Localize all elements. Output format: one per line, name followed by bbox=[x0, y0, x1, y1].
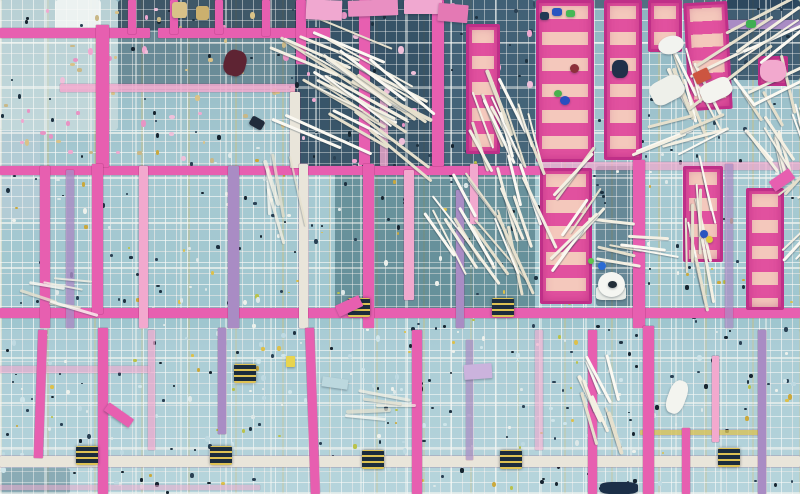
clamp-block bbox=[362, 450, 384, 469]
pink-tarp bbox=[760, 60, 786, 82]
debris-speck bbox=[166, 491, 169, 494]
formwork-beam-vertical bbox=[432, 0, 444, 166]
debris-speck bbox=[460, 468, 464, 473]
formwork-beam-vertical bbox=[228, 166, 239, 328]
debris-speck bbox=[203, 141, 205, 143]
debris-speck bbox=[81, 155, 83, 158]
debris-speck bbox=[156, 133, 159, 138]
debris-speck bbox=[295, 82, 299, 88]
worker bbox=[566, 10, 575, 17]
debris-speck bbox=[395, 374, 399, 380]
debris-speck bbox=[433, 485, 436, 487]
debris-speck bbox=[736, 260, 739, 262]
debris-speck bbox=[402, 123, 405, 127]
debris-speck bbox=[243, 114, 248, 118]
debris-speck bbox=[693, 276, 695, 278]
debris-speck bbox=[156, 285, 160, 287]
debris-speck bbox=[518, 75, 520, 77]
formwork-beam-horizontal bbox=[0, 308, 800, 318]
formwork-beam-vertical bbox=[404, 170, 414, 300]
debris-speck bbox=[506, 436, 509, 438]
debris-speck bbox=[791, 197, 794, 199]
debris-speck bbox=[26, 17, 29, 20]
debris-speck bbox=[450, 181, 453, 183]
debris-speck bbox=[76, 111, 79, 115]
formwork-beam-vertical bbox=[299, 164, 308, 328]
debris-speck bbox=[416, 144, 419, 147]
formwork-beam-vertical bbox=[218, 328, 226, 434]
debris-speck bbox=[338, 208, 340, 211]
debris-speck bbox=[277, 54, 280, 56]
debris-speck bbox=[261, 347, 264, 351]
debris-speck bbox=[695, 320, 697, 323]
debris-speck bbox=[70, 63, 75, 66]
debris-speck bbox=[68, 150, 73, 154]
worker bbox=[598, 262, 606, 270]
debris-speck bbox=[50, 385, 53, 389]
debris-speck bbox=[384, 260, 388, 266]
debris-speck bbox=[520, 388, 523, 391]
debris-speck bbox=[435, 327, 437, 330]
debris-speck bbox=[255, 159, 258, 162]
formwork-panel bbox=[536, 0, 594, 162]
debris-speck bbox=[411, 71, 416, 75]
debris-speck bbox=[527, 81, 533, 88]
debris-speck bbox=[790, 301, 793, 303]
formwork-beam-vertical bbox=[712, 356, 719, 442]
debris-speck bbox=[25, 139, 30, 146]
debris-speck bbox=[464, 183, 468, 188]
debris-speck bbox=[344, 182, 347, 186]
worker bbox=[540, 12, 549, 20]
debris-speck bbox=[391, 387, 394, 391]
debris-speck bbox=[398, 46, 404, 54]
debris-speck bbox=[188, 396, 192, 401]
debris-speck bbox=[250, 12, 255, 19]
debris-speck bbox=[532, 324, 535, 329]
debris-speck bbox=[476, 293, 479, 295]
wood-crate bbox=[196, 6, 209, 20]
debris-speck bbox=[170, 448, 173, 450]
formwork-panel bbox=[604, 0, 642, 160]
debris-speck bbox=[635, 334, 637, 337]
debris-speck bbox=[51, 118, 54, 122]
debris-speck bbox=[190, 473, 194, 478]
debris-speck bbox=[314, 239, 318, 244]
debris-speck bbox=[570, 351, 573, 353]
debris-speck bbox=[201, 192, 204, 194]
debris-speck bbox=[350, 373, 352, 374]
worker bbox=[554, 90, 562, 97]
white-pole bbox=[691, 204, 694, 263]
debris-speck bbox=[253, 202, 256, 204]
debris-speck bbox=[300, 342, 302, 344]
debris-speck bbox=[128, 247, 130, 248]
navy-tarp bbox=[600, 482, 638, 494]
debris-speck bbox=[319, 442, 322, 444]
debris-speck bbox=[210, 158, 214, 163]
debris-speck bbox=[773, 103, 776, 105]
debris-speck bbox=[383, 15, 386, 19]
debris-speck bbox=[162, 399, 164, 401]
debris-speck bbox=[655, 405, 659, 410]
debris-speck bbox=[435, 281, 438, 286]
debris-speck bbox=[133, 359, 137, 361]
formwork-beam-horizontal bbox=[0, 366, 150, 373]
debris-speck bbox=[330, 347, 332, 350]
formwork-beam-horizontal bbox=[0, 456, 800, 467]
debris-speck bbox=[18, 94, 21, 99]
debris-speck bbox=[155, 120, 157, 122]
debris-speck bbox=[11, 79, 13, 82]
formwork-beam-horizontal bbox=[0, 485, 260, 490]
debris-speck bbox=[281, 404, 284, 406]
worker bbox=[570, 64, 579, 73]
formwork-beam-vertical bbox=[633, 160, 645, 328]
debris-speck bbox=[742, 285, 745, 290]
debris-speck bbox=[688, 266, 691, 269]
debris-speck bbox=[211, 271, 214, 275]
debris-speck bbox=[16, 425, 18, 427]
debris-speck bbox=[640, 360, 642, 362]
formwork-beam-vertical bbox=[215, 0, 223, 34]
debris-speck bbox=[123, 299, 126, 303]
debris-speck bbox=[417, 323, 420, 325]
debris-speck bbox=[742, 279, 744, 281]
pink-panel-piece bbox=[306, 0, 343, 21]
yellow-note bbox=[286, 356, 295, 367]
debris-speck bbox=[686, 273, 689, 276]
debris-speck bbox=[785, 352, 788, 354]
debris-speck bbox=[84, 225, 87, 228]
debris-speck bbox=[284, 221, 286, 223]
debris-speck bbox=[288, 292, 291, 294]
debris-speck bbox=[563, 422, 567, 425]
debris-speck bbox=[6, 349, 9, 352]
debris-speck bbox=[516, 353, 519, 358]
debris-speck bbox=[397, 232, 399, 235]
debris-speck bbox=[159, 290, 161, 293]
green-bit bbox=[746, 20, 756, 28]
debris bbox=[248, 115, 265, 131]
debris-speck bbox=[196, 258, 200, 263]
clamp-block bbox=[76, 446, 98, 465]
debris-speck bbox=[774, 483, 777, 487]
debris-speck bbox=[704, 384, 708, 389]
clamp-block bbox=[492, 298, 514, 317]
debris-speck bbox=[169, 132, 174, 136]
debris-speck bbox=[519, 446, 521, 449]
debris-speck bbox=[249, 427, 253, 431]
debris-speck bbox=[354, 238, 357, 241]
debris-speck bbox=[302, 136, 306, 140]
debris-speck bbox=[20, 397, 25, 402]
debris-speck bbox=[509, 44, 511, 46]
debris-speck bbox=[87, 434, 91, 439]
formwork-beam-vertical bbox=[643, 326, 654, 494]
formwork-beam-vertical bbox=[139, 166, 148, 328]
debris-speck bbox=[739, 341, 743, 345]
debris-speck bbox=[21, 388, 24, 390]
debris-speck bbox=[400, 388, 403, 391]
debris-speck bbox=[648, 114, 651, 117]
debris-speck bbox=[649, 268, 652, 270]
pink-panel-piece bbox=[348, 0, 399, 17]
clamp-block bbox=[718, 448, 740, 467]
debris-speck bbox=[677, 271, 679, 274]
debris-speck bbox=[670, 149, 673, 152]
debris-speck bbox=[89, 151, 93, 154]
debris-speck bbox=[304, 398, 307, 403]
debris-speck bbox=[711, 268, 714, 270]
debris-speck bbox=[381, 196, 384, 200]
debris-speck bbox=[645, 155, 647, 158]
debris-speck bbox=[66, 121, 70, 126]
debris-speck bbox=[685, 285, 689, 289]
debris-speck bbox=[315, 132, 318, 134]
debris-speck bbox=[783, 379, 787, 382]
debris-speck bbox=[20, 302, 23, 304]
debris-speck bbox=[449, 410, 452, 412]
clamp-block bbox=[210, 446, 232, 465]
debris-speck bbox=[20, 141, 24, 144]
debris-speck bbox=[216, 245, 220, 249]
debris-speck bbox=[51, 396, 54, 398]
debris-speck bbox=[256, 147, 260, 149]
debris-speck bbox=[457, 331, 460, 333]
debris-speck bbox=[600, 191, 604, 194]
white-pole bbox=[376, 404, 416, 407]
formwork-beam-vertical bbox=[725, 164, 733, 328]
debris-speck bbox=[40, 131, 46, 135]
debris-speck bbox=[49, 134, 53, 139]
debris-speck bbox=[188, 247, 191, 251]
debris-speck bbox=[558, 335, 561, 339]
debris-speck bbox=[717, 281, 721, 284]
debris-speck bbox=[647, 242, 650, 245]
debris-speck bbox=[6, 188, 10, 194]
debris-speck bbox=[549, 407, 553, 410]
debris-speck bbox=[281, 333, 286, 338]
debris-speck bbox=[60, 423, 62, 426]
debris-speck bbox=[404, 331, 407, 333]
debris-speck bbox=[791, 382, 795, 385]
debris-speck bbox=[472, 319, 474, 321]
debris-speck bbox=[780, 8, 783, 11]
debris-speck bbox=[195, 95, 200, 100]
debris-speck bbox=[452, 350, 455, 352]
debris-speck bbox=[56, 179, 60, 182]
debris-speck bbox=[256, 358, 261, 365]
clamp-block bbox=[500, 450, 522, 469]
debris-speck bbox=[110, 254, 113, 257]
debris-speck bbox=[228, 153, 232, 158]
debris-speck bbox=[291, 77, 293, 79]
formwork-beam-vertical bbox=[128, 0, 136, 34]
debris-speck bbox=[527, 30, 532, 37]
debris-speck bbox=[250, 57, 253, 60]
debris-speck bbox=[480, 346, 484, 349]
debris-speck bbox=[205, 288, 208, 291]
formwork-beam-vertical bbox=[148, 330, 155, 450]
debris-speck bbox=[649, 171, 651, 173]
debris-speck bbox=[321, 232, 323, 233]
debris-speck bbox=[76, 296, 79, 300]
construction-site-aerial-photo: Aerial top-down photograph of a building… bbox=[0, 0, 800, 494]
debris-speck bbox=[154, 8, 158, 11]
debris-speck bbox=[788, 394, 792, 399]
debris-speck bbox=[141, 120, 146, 127]
debris-speck bbox=[260, 235, 262, 238]
debris-speck bbox=[137, 151, 141, 155]
white-pole bbox=[797, 168, 800, 198]
debris-speck bbox=[243, 300, 247, 306]
debris-speck bbox=[169, 115, 175, 119]
debris-speck bbox=[555, 482, 558, 486]
debris-speck bbox=[598, 119, 601, 122]
debris-speck bbox=[256, 297, 260, 303]
debris-speck bbox=[333, 156, 336, 160]
debris-speck bbox=[145, 50, 148, 53]
debris-speck bbox=[140, 478, 143, 481]
debris-speck bbox=[83, 208, 87, 214]
debris-speck bbox=[49, 98, 51, 99]
debris-speck bbox=[596, 325, 600, 328]
debris-speck bbox=[15, 207, 18, 210]
debris-speck bbox=[232, 388, 235, 391]
mixer-hub bbox=[608, 281, 617, 288]
debris-speck bbox=[252, 324, 256, 327]
debris-speck bbox=[155, 258, 158, 262]
debris-speck bbox=[4, 104, 8, 107]
debris-speck bbox=[192, 19, 194, 21]
debris-speck bbox=[149, 474, 151, 477]
debris-speck bbox=[665, 180, 668, 184]
pink-panel-piece bbox=[404, 0, 442, 14]
debris-speck bbox=[566, 407, 569, 409]
white-pole bbox=[741, 90, 763, 122]
debris-speck bbox=[311, 224, 314, 228]
debris-speck bbox=[521, 442, 525, 446]
purple-sign bbox=[464, 363, 493, 380]
debris-speck bbox=[604, 202, 606, 204]
debris-speck bbox=[377, 434, 380, 438]
debris-speck bbox=[353, 444, 356, 449]
debris-speck bbox=[658, 481, 661, 485]
debris-speck bbox=[80, 24, 83, 28]
formwork-beam-vertical bbox=[682, 428, 690, 494]
debris-speck bbox=[554, 437, 556, 440]
debris-speck bbox=[195, 131, 198, 133]
debris-speck bbox=[208, 58, 212, 63]
debris-speck bbox=[236, 351, 238, 353]
debris-speck bbox=[460, 33, 463, 35]
debris-speck bbox=[111, 92, 115, 96]
debris-speck bbox=[163, 324, 166, 326]
debris-speck bbox=[749, 374, 753, 378]
formwork-beam-vertical bbox=[535, 330, 543, 450]
debris-speck bbox=[189, 286, 191, 288]
debris-speck bbox=[77, 68, 82, 72]
debris-speck bbox=[632, 450, 636, 453]
formwork-panel bbox=[746, 188, 784, 310]
formwork-beam-horizontal bbox=[640, 430, 760, 435]
debris-speck bbox=[131, 47, 135, 51]
wood-crate bbox=[172, 2, 187, 18]
debris-speck bbox=[12, 219, 16, 223]
debris-speck bbox=[214, 162, 217, 164]
formwork-beam-vertical bbox=[262, 0, 270, 36]
debris-speck bbox=[62, 195, 64, 197]
white-pole bbox=[648, 114, 693, 128]
debris-speck bbox=[635, 365, 638, 368]
debris-speck bbox=[261, 375, 266, 381]
worker bbox=[552, 8, 562, 16]
pink-panel-piece bbox=[437, 3, 468, 24]
debris-speck bbox=[482, 336, 486, 341]
debris-speck bbox=[156, 150, 159, 155]
debris-speck bbox=[661, 153, 664, 156]
debris-speck bbox=[352, 159, 356, 163]
debris-speck bbox=[116, 151, 120, 154]
debris-speck bbox=[593, 175, 596, 177]
debris-speck bbox=[198, 112, 202, 115]
debris-speck bbox=[525, 59, 528, 62]
worker bbox=[588, 258, 594, 264]
debris-speck bbox=[25, 20, 28, 24]
debris-speck bbox=[64, 360, 68, 363]
debris-speck bbox=[144, 98, 147, 101]
debris-speck bbox=[263, 177, 266, 181]
debris-speck bbox=[88, 48, 93, 55]
debris-speck bbox=[341, 12, 347, 19]
debris-speck bbox=[57, 198, 61, 201]
debris-speck bbox=[118, 298, 120, 301]
debris-speck bbox=[82, 182, 86, 187]
debris-speck bbox=[79, 439, 82, 443]
dark-helmet bbox=[612, 60, 628, 78]
debris-speck bbox=[697, 355, 701, 361]
debris-speck bbox=[183, 249, 186, 252]
debris-speck bbox=[114, 56, 116, 59]
clamp-block bbox=[234, 364, 256, 383]
debris-speck bbox=[422, 440, 425, 442]
debris-speck bbox=[443, 423, 447, 426]
debris-speck bbox=[56, 140, 61, 143]
debris-speck bbox=[207, 482, 211, 484]
debris-speck bbox=[422, 423, 426, 429]
debris-speck bbox=[108, 226, 110, 229]
debris-speck bbox=[321, 225, 324, 227]
debris-speck bbox=[745, 416, 749, 421]
debris-speck bbox=[73, 58, 79, 62]
debris-speck bbox=[534, 276, 538, 280]
debris-speck bbox=[26, 409, 29, 411]
debris-speck bbox=[145, 15, 148, 20]
debris-speck bbox=[280, 290, 284, 293]
debris-speck bbox=[675, 423, 678, 426]
debris-speck bbox=[259, 342, 263, 347]
debris-speck bbox=[180, 298, 184, 303]
debris-speck bbox=[676, 244, 680, 247]
debris-speck bbox=[194, 449, 196, 450]
debris-speck bbox=[366, 328, 370, 331]
debris-speck bbox=[48, 361, 52, 365]
debris-speck bbox=[121, 471, 123, 473]
debris-speck bbox=[718, 136, 720, 139]
debris-speck bbox=[337, 292, 340, 294]
debris-speck bbox=[575, 440, 579, 446]
